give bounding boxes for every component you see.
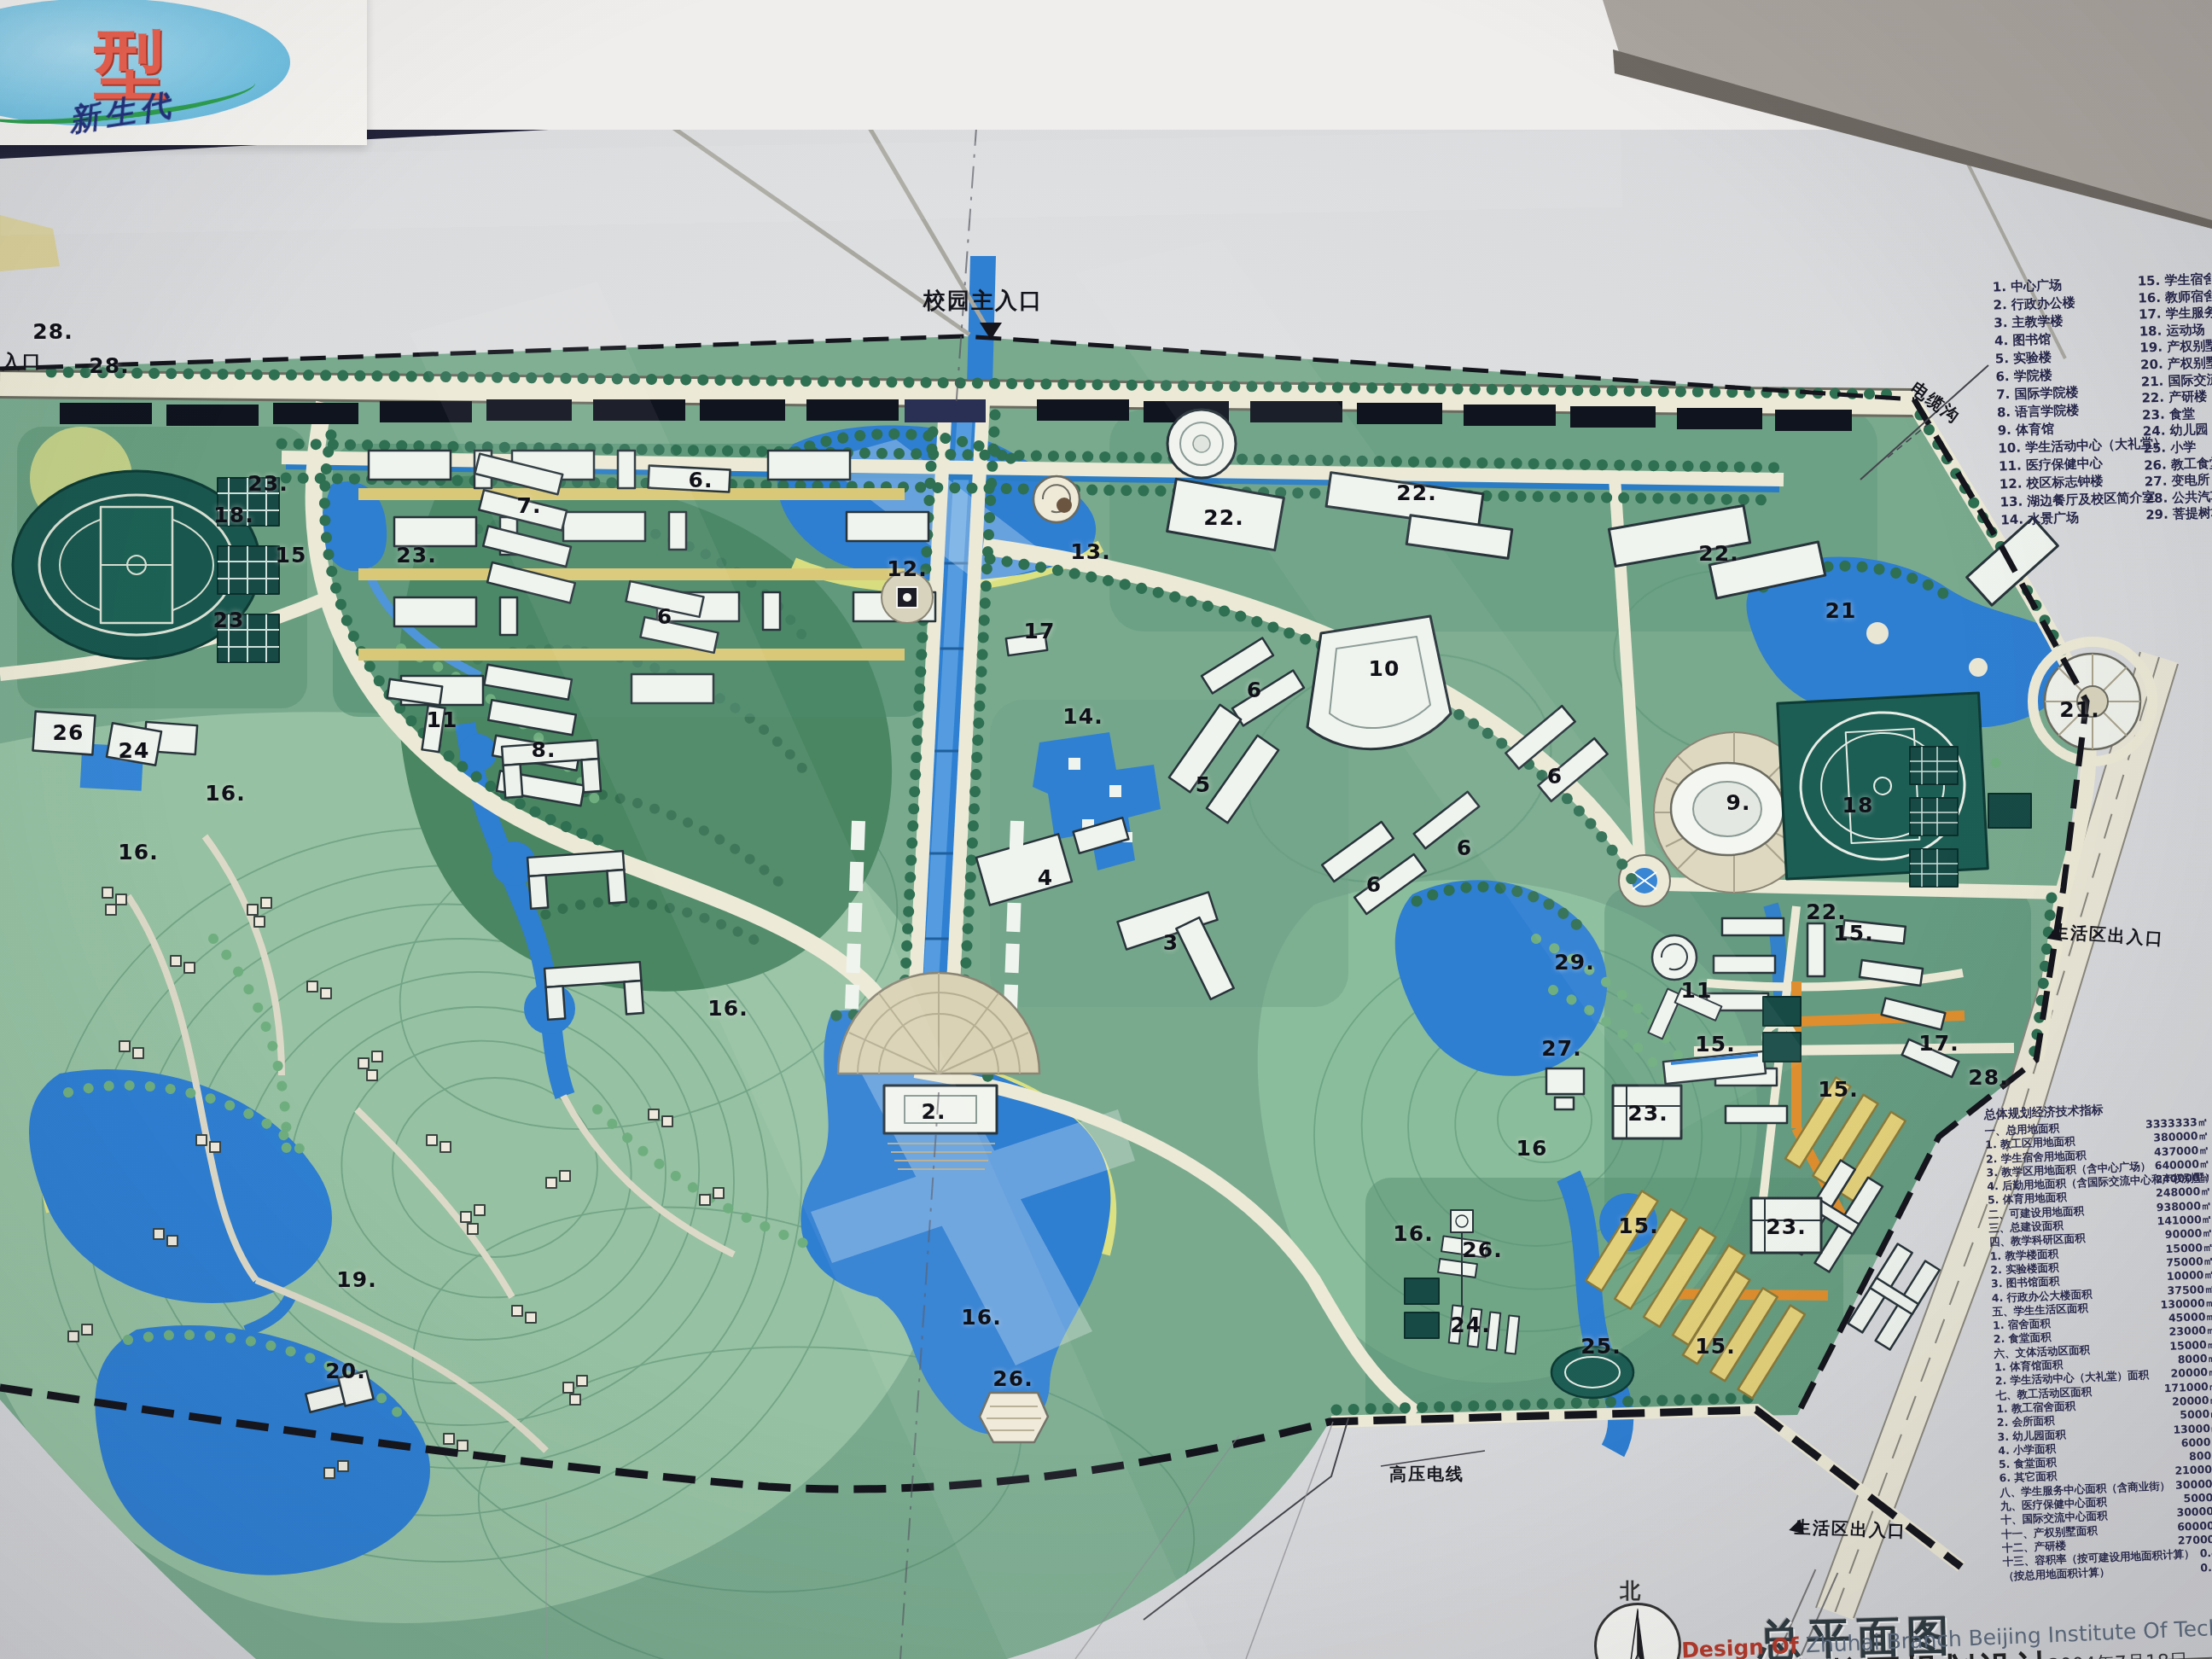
- indicator-value: 5000㎡: [2180, 1407, 2212, 1423]
- indicator-label: 1. 体育馆面积: [1994, 1358, 2064, 1373]
- legend-item-number: 25.: [2143, 440, 2166, 457]
- legend-item-label: 图书馆: [2012, 331, 2052, 348]
- legend-item-number: 4.: [1994, 333, 2009, 349]
- map-number-label: 25.: [1580, 1334, 1621, 1359]
- map-number-label: 18.: [213, 503, 253, 527]
- legend-item-label: 变电所: [2171, 472, 2210, 489]
- legend-item-label: 国际学院楼: [2014, 384, 2079, 402]
- legend-item: 24. 幼儿园: [2143, 420, 2212, 440]
- legend-item: 17. 学生服务中心: [2139, 303, 2212, 323]
- map-number-label: 16.: [707, 996, 748, 1021]
- indicator-value: 15000㎡: [2169, 1337, 2212, 1353]
- indicator-label: 2. 会所面积: [1997, 1414, 2055, 1429]
- legend-item: 21. 国际交流中心: [2140, 370, 2212, 390]
- legend-item-number: 10.: [1998, 440, 2021, 457]
- legend-item: 23. 食堂: [2142, 404, 2212, 424]
- map-number-label: 7.: [517, 493, 542, 518]
- legend-item-number: 29.: [2145, 507, 2168, 523]
- legend-item-number: 5.: [1994, 351, 2009, 367]
- legend-item-number: 24.: [2143, 423, 2166, 439]
- map-number-label: 16.: [961, 1305, 1001, 1330]
- map-number-label: 11: [427, 707, 458, 732]
- map-number-label: 16: [1516, 1136, 1548, 1161]
- legend-item: 22. 产研楼: [2141, 387, 2212, 407]
- legend-item-label: 食堂: [2169, 405, 2196, 422]
- indicator-label: 2. 实验楼面积: [1990, 1260, 2059, 1276]
- indicator-label: 4. 小学面积: [1998, 1441, 2056, 1457]
- legend-item-label: 小学: [2170, 439, 2197, 455]
- legend-item-number: 23.: [2142, 406, 2165, 422]
- legend-item-label: 教工食堂及会所: [2171, 453, 2212, 472]
- map-number-label: 6: [1247, 678, 1262, 702]
- indicator-label: 1. 教学楼面积: [1989, 1247, 2058, 1262]
- indicator-label: 3. 图书馆面积: [1991, 1274, 2060, 1289]
- map-number-label: 15.: [1818, 1077, 1858, 1102]
- map-number-label: 12.: [887, 556, 927, 581]
- north-compass-icon: [1594, 1603, 1681, 1659]
- legend-item-number: 20.: [2140, 357, 2163, 373]
- map-number-label: 15.: [1618, 1214, 1658, 1238]
- legend-item-number: 15.: [2137, 273, 2160, 289]
- map-number-label: 6.: [689, 468, 713, 492]
- map-number-label: 6: [1547, 764, 1563, 789]
- legend-item-number: 3.: [1994, 315, 2008, 331]
- legend-item-number: 28.: [2145, 490, 2168, 506]
- legend-item-number: 8.: [1997, 405, 2011, 421]
- map-number-label: 11: [1681, 978, 1713, 1003]
- legend-item-label: 产权别墅区: [2167, 337, 2212, 355]
- legend-column-2: 15. 学生宿舍区16. 教师宿舍区17. 学生服务中心18. 运动场19. 产…: [2137, 271, 2212, 525]
- legend-item-label: 产权别墅区会所: [2168, 353, 2212, 372]
- legend-item-number: 27.: [2145, 474, 2168, 490]
- title-block: 北 总平面图 Design Of Zhuhai Branch Beijing I…: [1570, 1570, 2212, 1659]
- map-number-label: 17.: [1918, 1031, 1959, 1056]
- map-number-label: 14.: [1062, 704, 1103, 729]
- indicator-label: 1. 宿舍面积: [1993, 1317, 2051, 1332]
- map-number-label: 26.: [1462, 1237, 1502, 1262]
- legend-item: 19. 产权别墅区: [2139, 336, 2212, 357]
- legend-item-number: 22.: [2141, 390, 2164, 406]
- map-number-label: 15: [276, 543, 307, 568]
- map-number-label: 24.: [1450, 1313, 1490, 1337]
- map-annotation: 生活区出入口: [1794, 1516, 1907, 1543]
- legend-item-label: 水景广场: [2028, 509, 2080, 527]
- indicator-value: 0.45: [2199, 1545, 2212, 1561]
- indicator-label: 5. 食堂面积: [1999, 1456, 2057, 1471]
- map-number-label: 22.: [1698, 541, 1738, 566]
- north-label: 北: [1620, 1577, 1640, 1604]
- indicator-value: 6000㎡: [2180, 1435, 2212, 1450]
- map-number-label: 22.: [1396, 480, 1436, 505]
- map-number-label: 28.: [32, 319, 73, 344]
- legend-item-label: 学生宿舍区: [2164, 271, 2212, 288]
- legend-item-number: 9.: [1997, 422, 2011, 439]
- legend-item-number: 6.: [1995, 369, 2010, 385]
- map-number-label: 27.: [1541, 1036, 1581, 1061]
- legend-item-number: 2.: [1993, 297, 2007, 313]
- map-number-label: 23.: [247, 471, 288, 496]
- indicator-value: 5000㎡: [2183, 1490, 2212, 1505]
- legend-item-number: 14.: [2000, 511, 2023, 527]
- indicator-value: 20000㎡: [2170, 1365, 2212, 1382]
- map-number-label: 18: [1842, 793, 1874, 818]
- indicator-value: 21000㎡: [2174, 1463, 2212, 1479]
- legend-item: 20. 产权别墅区会所: [2140, 353, 2212, 374]
- legend-item: 28. 公共汽车站: [2145, 486, 2212, 507]
- date-label: 2004年7月18日: [2047, 1648, 2188, 1659]
- legend-item-number: 21.: [2140, 373, 2163, 389]
- map-number-label: 16.: [1393, 1221, 1433, 1246]
- main-entrance-marker-icon: [980, 323, 1002, 340]
- map-number-label: 5: [1196, 772, 1211, 797]
- legend-item-label: 学院楼: [2014, 367, 2053, 384]
- legend-item-number: 13.: [2000, 493, 2023, 509]
- legend-item-label: 实验楼: [2013, 349, 2052, 366]
- legend-item-number: 17.: [2139, 306, 2162, 323]
- indicator-value: 30000㎡: [2176, 1505, 2212, 1521]
- legend-item-number: 16.: [2138, 289, 2161, 306]
- indicator-value: 27000㎡: [2178, 1532, 2212, 1548]
- indicator-label: 十二、产研楼: [2002, 1539, 2067, 1554]
- indicator-value: 30000㎡: [2175, 1476, 2212, 1493]
- map-number-label: 15.: [1833, 921, 1873, 946]
- legend-item: 16. 教师宿舍区: [2138, 286, 2212, 306]
- map-number-label: 3: [1163, 930, 1179, 955]
- indicator-label: 3. 幼儿园面积: [1997, 1428, 2066, 1443]
- map-number-label: 29.: [1554, 950, 1594, 975]
- map-number-label: 9.: [1726, 790, 1751, 815]
- legend-item: 26. 教工食堂及会所: [2144, 453, 2212, 474]
- map-number-label: 23.: [1627, 1101, 1668, 1126]
- legend: 1. 中心广场2. 行政办公楼3. 主教学楼4. 图书馆5. 实验楼6. 学院楼…: [1992, 271, 2212, 552]
- adjacent-sign: 型 新生代: [0, 0, 367, 145]
- legend-item-number: 18.: [2139, 323, 2162, 339]
- map-annotation: 高压电线: [1389, 1463, 1464, 1486]
- map-number-label: 28.: [89, 353, 129, 378]
- map-number-label: 13.: [1070, 539, 1110, 564]
- legend-item-label: 语言学院楼: [2015, 402, 2080, 420]
- photo-of-campus-masterplan-board: { "palette":{ "paper":"#dcdde0","frame":…: [0, 0, 2212, 1659]
- legend-item-number: 19.: [2139, 340, 2163, 356]
- legend-item-label: 学生服务中心: [2166, 304, 2212, 322]
- map-number-label: 16.: [118, 840, 158, 864]
- map-number-label: 23.: [1766, 1214, 1806, 1239]
- map-number-label: 23.: [396, 543, 436, 568]
- legend-item-label: 产研楼: [2168, 388, 2208, 405]
- indicator-value: 8000㎡: [2177, 1352, 2212, 1367]
- map-number-label: 6: [1457, 835, 1472, 860]
- legend-item-label: 中心广场: [2011, 277, 2063, 294]
- map-number-label: 16.: [205, 781, 245, 806]
- legend-item-number: 7.: [1996, 387, 2011, 403]
- legend-item-label: 主教学楼: [2011, 313, 2064, 330]
- legend-item-number: 12.: [2000, 475, 2023, 492]
- legend-item-label: 菩提树林: [2173, 505, 2212, 522]
- legend-item-label: 体育馆: [2016, 421, 2055, 438]
- site-plan-svg: [0, 0, 2212, 1659]
- economic-indicators-panel: 总体规划经济技术指标 一、总用地面积 3333333㎡ 1. 教工区用地面积 3…: [1983, 1098, 2212, 1583]
- indicator-value: 800㎡: [2189, 1448, 2212, 1464]
- legend-item-label: 幼儿园: [2169, 422, 2209, 439]
- map-number-label: 21.: [2059, 697, 2099, 722]
- map-number-label: 10: [1369, 656, 1400, 681]
- legend-item: 18. 运动场: [2139, 320, 2212, 341]
- map-number-label: 26: [53, 720, 84, 745]
- map-annotation: 校园主入口: [923, 286, 1043, 316]
- map-number-label: 28.: [1968, 1065, 2008, 1090]
- legend-item: 27. 变电所: [2145, 470, 2212, 491]
- map-number-label: 24: [119, 738, 150, 763]
- map-number-label: 26.: [992, 1366, 1033, 1391]
- map-number-label: 19.: [336, 1267, 376, 1292]
- map-annotation: 入口: [2, 349, 43, 375]
- map-number-label: 8.: [532, 737, 556, 762]
- indicator-label: 2. 食堂面积: [1994, 1330, 2052, 1346]
- indicator-value: 20000㎡: [2172, 1393, 2212, 1409]
- legend-item-label: 医疗保健中心: [2026, 455, 2104, 473]
- legend-item-label: 国际交流中心: [2168, 370, 2212, 388]
- map-number-label: 17: [1024, 619, 1056, 643]
- map-number-label: 20.: [325, 1359, 365, 1383]
- legend-item-label: 教师宿舍区: [2165, 287, 2212, 305]
- map-number-label: 4: [1038, 865, 1053, 890]
- map-number-label: 6: [1366, 872, 1382, 897]
- legend-item-label: 运动场: [2166, 322, 2205, 339]
- legend-item-label: 公共汽车站: [2172, 487, 2212, 505]
- map-number-label: 2.: [922, 1099, 946, 1124]
- legend-item-number: 11.: [1999, 458, 2022, 474]
- legend-item-label: 校区标志钟楼: [2026, 473, 2104, 491]
- indicator-value: 13000㎡: [2173, 1421, 2212, 1437]
- map-number-label: 6: [657, 604, 672, 629]
- indicator-label: 6. 其它面积: [1999, 1470, 2057, 1485]
- legend-item: 25. 小学: [2143, 437, 2212, 457]
- indicators-rows: 一、总用地面积 3333333㎡ 1. 教工区用地面积 380000㎡ 2. 学…: [1984, 1115, 2212, 1583]
- indicator-value: 60000㎡: [2177, 1518, 2212, 1534]
- legend-item-label: 湖边餐厅及校区简介室: [2027, 489, 2156, 509]
- legend-item: 29. 菩提树林: [2145, 504, 2212, 524]
- map-number-label: 23: [213, 608, 245, 632]
- map-number-label: 22.: [1203, 505, 1243, 530]
- map-number-label: 21: [1825, 598, 1857, 623]
- legend-item-label: 行政办公楼: [2011, 294, 2076, 312]
- map-number-label: 15.: [1695, 1334, 1735, 1359]
- legend-item-number: 26.: [2144, 457, 2167, 473]
- legend-item-number: 1.: [1993, 279, 2007, 295]
- site-plan-drawing: [0, 0, 2212, 1659]
- map-number-label: 15.: [1695, 1032, 1735, 1057]
